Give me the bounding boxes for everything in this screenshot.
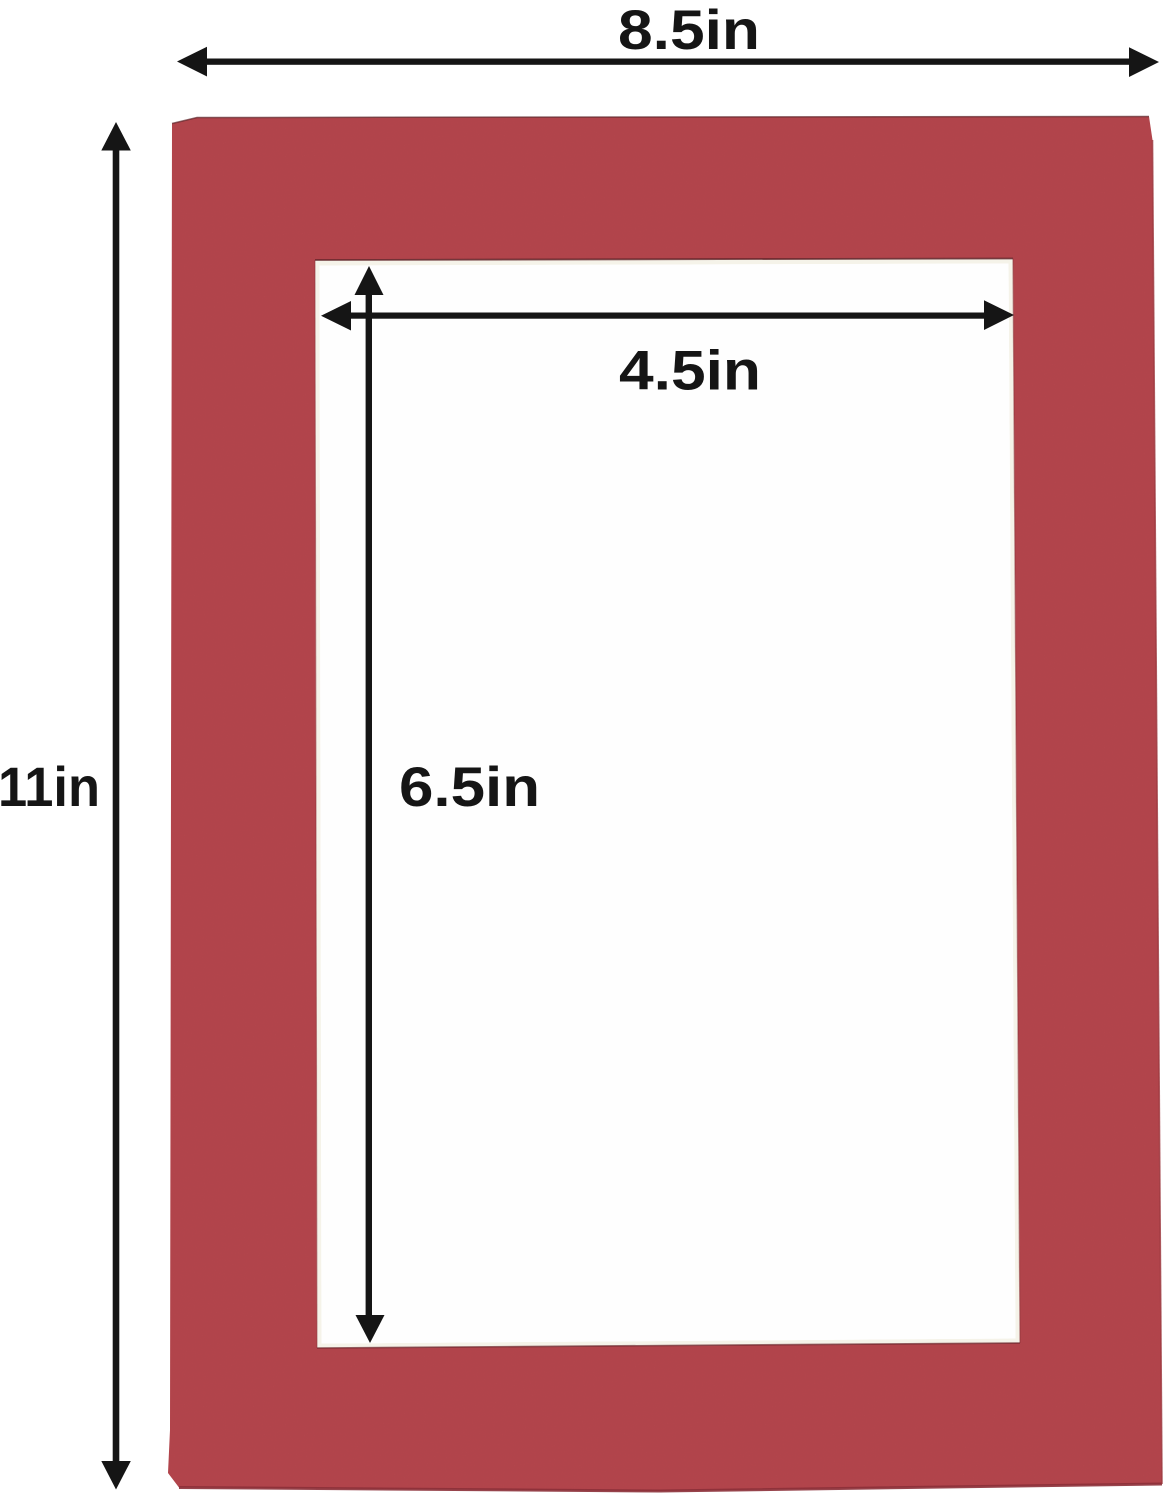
svg-text:4.5in: 4.5in [619,339,761,402]
svg-text:8.5in: 8.5in [618,0,760,61]
svg-text:11in: 11in [0,755,100,818]
svg-text:6.5in: 6.5in [399,755,540,818]
